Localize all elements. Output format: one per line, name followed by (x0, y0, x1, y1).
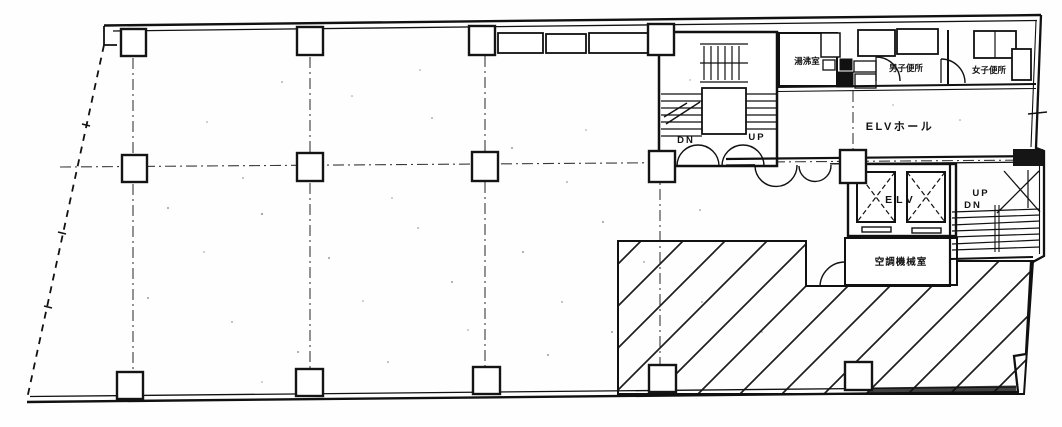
right-stair-wall-block (1013, 149, 1043, 166)
door-arc (799, 165, 831, 181)
elv-hall-label: ELVホール (866, 120, 935, 133)
stair-right-dn-label: DN (964, 200, 982, 211)
column (122, 155, 147, 182)
column (840, 150, 866, 183)
stair-landing (702, 88, 746, 134)
elv-label: ELV (885, 194, 917, 206)
column (473, 367, 500, 394)
toilet-stall (897, 29, 938, 54)
mens-toilet-label: 男子便所 (889, 63, 924, 73)
column (297, 153, 323, 181)
wall-bottom-smudge (868, 389, 1016, 391)
wall-joint-tick (1028, 112, 1047, 114)
service-cell (546, 34, 586, 53)
machine-room-label: 空調機械室 (875, 256, 928, 268)
stair-right-up-label: UP (972, 188, 989, 199)
column (649, 151, 675, 182)
service-cell (589, 33, 651, 53)
kitchenette-label: 湯沸室 (794, 56, 820, 66)
column (472, 152, 498, 181)
column (469, 26, 495, 55)
column (649, 365, 676, 392)
womens-toilet-room: 女子便所 (941, 31, 1031, 83)
door-arc (755, 165, 797, 186)
elevator-door (912, 228, 941, 233)
door-arc (941, 59, 965, 83)
stair-treads-right-stair (952, 209, 1040, 250)
hatched-area-outline (618, 241, 1033, 394)
column (845, 362, 872, 390)
left-staircase: DN UP (659, 32, 777, 166)
floor-plan-sheet: DN UP 湯沸室 男子便所 女子便所 (0, 0, 1062, 427)
shaft-cell (821, 33, 840, 57)
shaft-cell-filled (840, 59, 852, 70)
top-service-band (498, 33, 651, 53)
toilet-stall (1012, 49, 1031, 80)
column (296, 369, 323, 396)
column (121, 29, 146, 56)
column (117, 372, 143, 399)
toilet-block-wall-inner (778, 89, 1036, 92)
hatched-area (618, 241, 1033, 394)
wall-top-outer (104, 15, 1041, 26)
right-stair-bottom-wall (950, 257, 1033, 259)
stair-left-up-label: UP (748, 132, 765, 143)
service-cell (498, 33, 543, 53)
shaft-cell (854, 61, 876, 72)
column (297, 27, 323, 55)
elevator-door (862, 227, 891, 232)
machine-room: 空調機械室 (820, 238, 957, 287)
stair-left-dn-label: DN (677, 135, 695, 146)
wall-top-left-step (104, 26, 117, 45)
toilet-stall (858, 30, 895, 56)
column (648, 24, 674, 55)
door-arc (820, 262, 845, 287)
shaft-cell (823, 60, 835, 70)
mens-toilet-room: 男子便所 (858, 29, 938, 81)
shaft-cell-filled (837, 72, 853, 87)
floor-plan-canvas: DN UP 湯沸室 男子便所 女子便所 (0, 0, 1062, 427)
womens-toilet-label: 女子便所 (972, 65, 1007, 75)
wall-left-dashed (27, 45, 104, 399)
stair-direction-cross (997, 171, 1040, 213)
